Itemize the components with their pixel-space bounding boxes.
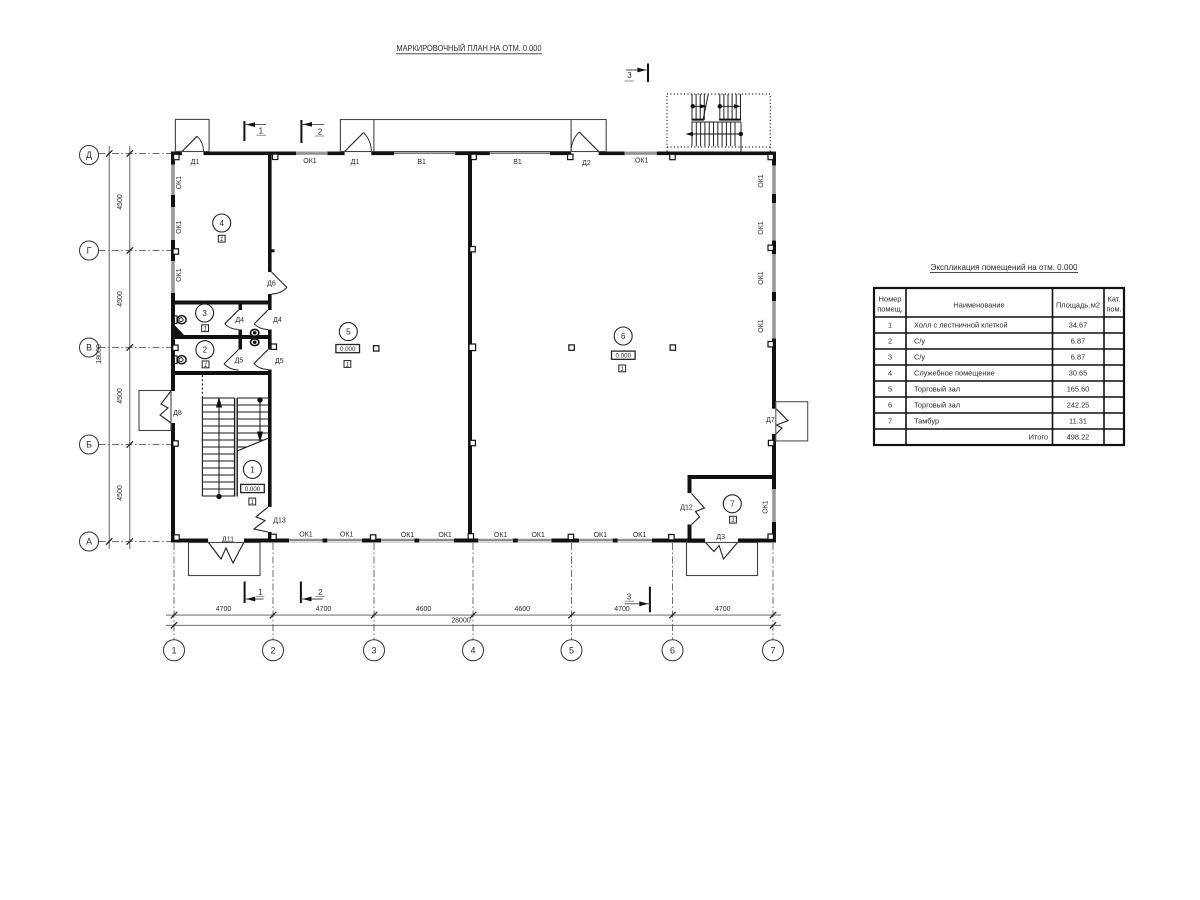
svg-text:1: 1 — [346, 361, 350, 368]
svg-text:28000: 28000 — [451, 618, 471, 625]
svg-text:165.60: 165.60 — [1067, 385, 1090, 394]
svg-text:ОК1: ОК1 — [340, 532, 354, 539]
svg-text:6.87: 6.87 — [1071, 353, 1085, 362]
svg-text:Д1: Д1 — [191, 159, 200, 166]
svg-text:С/у: С/у — [914, 353, 925, 362]
svg-text:ОК1: ОК1 — [758, 221, 765, 235]
svg-text:Холл с лестничной клеткой: Холл с лестничной клеткой — [914, 321, 1008, 330]
svg-text:1: 1 — [888, 321, 892, 330]
svg-text:помещ.: помещ. — [877, 305, 902, 314]
svg-text:2: 2 — [318, 588, 323, 597]
svg-text:ОК1: ОК1 — [763, 500, 770, 514]
svg-text:2: 2 — [318, 127, 323, 136]
svg-text:4700: 4700 — [715, 606, 731, 613]
svg-text:5: 5 — [888, 385, 892, 394]
svg-text:7: 7 — [730, 500, 735, 509]
svg-text:1: 1 — [204, 362, 208, 369]
svg-text:1: 1 — [220, 236, 224, 243]
svg-text:ОК1: ОК1 — [299, 532, 313, 539]
svg-text:Кат.: Кат. — [1108, 295, 1121, 304]
svg-text:Б: Б — [86, 440, 92, 450]
svg-text:ОК1: ОК1 — [303, 158, 317, 165]
svg-text:Тамбур: Тамбур — [914, 417, 939, 426]
svg-text:Д4: Д4 — [235, 317, 244, 324]
svg-text:242.25: 242.25 — [1067, 401, 1090, 410]
svg-text:ОК1: ОК1 — [758, 271, 765, 285]
svg-text:2: 2 — [203, 346, 208, 355]
svg-text:Торговый зал: Торговый зал — [914, 385, 960, 394]
svg-text:Площадь,: Площадь, — [1056, 301, 1090, 310]
svg-text:пом.: пом. — [1106, 305, 1121, 314]
svg-text:Г: Г — [87, 246, 92, 256]
svg-text:4700: 4700 — [216, 606, 232, 613]
svg-text:4600: 4600 — [515, 606, 531, 613]
svg-text:Д6: Д6 — [267, 281, 276, 288]
svg-text:0.000: 0.000 — [245, 486, 261, 493]
svg-text:1: 1 — [250, 465, 255, 474]
svg-text:4500: 4500 — [117, 485, 124, 501]
svg-text:ОК1: ОК1 — [758, 319, 765, 333]
svg-text:4: 4 — [888, 369, 892, 378]
svg-text:Д4: Д4 — [273, 317, 282, 324]
svg-text:5: 5 — [569, 645, 574, 655]
svg-text:Д1: Д1 — [351, 159, 360, 166]
svg-text:ОК1: ОК1 — [758, 174, 765, 188]
svg-text:Д5: Д5 — [275, 358, 284, 365]
svg-text:Д2: Д2 — [582, 160, 591, 167]
svg-text:3: 3 — [888, 353, 892, 362]
svg-text:0.000: 0.000 — [340, 346, 356, 353]
svg-text:Д12: Д12 — [680, 505, 693, 512]
svg-text:ОК1: ОК1 — [438, 532, 452, 539]
svg-text:Д: Д — [86, 150, 92, 160]
svg-text:3: 3 — [371, 645, 376, 655]
svg-text:ОК1: ОК1 — [594, 532, 608, 539]
svg-text:6.87: 6.87 — [1071, 337, 1085, 346]
svg-text:Д7: Д7 — [766, 417, 775, 424]
svg-text:В1: В1 — [513, 159, 522, 166]
svg-text:Наименование: Наименование — [953, 301, 1004, 310]
svg-text:1: 1 — [251, 499, 255, 506]
svg-text:С/у: С/у — [914, 337, 925, 346]
svg-text:5: 5 — [346, 328, 351, 337]
svg-text:Торговый зал: Торговый зал — [914, 401, 960, 410]
svg-text:34.67: 34.67 — [1069, 321, 1088, 330]
svg-text:3: 3 — [627, 71, 632, 80]
svg-text:30.65: 30.65 — [1069, 369, 1088, 378]
svg-text:7: 7 — [770, 645, 775, 655]
svg-text:498.22: 498.22 — [1067, 433, 1090, 442]
svg-text:4500: 4500 — [117, 194, 124, 210]
svg-text:1: 1 — [171, 645, 176, 655]
svg-text:ОК1: ОК1 — [176, 268, 183, 282]
svg-text:0.000: 0.000 — [616, 353, 632, 360]
svg-text:ОК1: ОК1 — [633, 532, 647, 539]
svg-text:1: 1 — [258, 588, 263, 597]
svg-text:Итого: Итого — [1029, 433, 1048, 442]
svg-text:Номер: Номер — [879, 295, 902, 304]
svg-text:Д13: Д13 — [273, 517, 286, 524]
svg-text:2: 2 — [888, 337, 892, 346]
svg-text:Экспликация помещений на отм.: Экспликация помещений на отм. 0.000 — [931, 262, 1078, 272]
svg-text:Д8: Д8 — [173, 410, 182, 417]
svg-text:ОК1: ОК1 — [176, 220, 183, 234]
svg-text:Д5: Д5 — [235, 357, 244, 364]
svg-text:1: 1 — [731, 517, 735, 524]
svg-text:3: 3 — [627, 593, 632, 602]
svg-text:В1: В1 — [417, 159, 426, 166]
svg-text:ОК1: ОК1 — [531, 532, 545, 539]
svg-text:м2: м2 — [1091, 301, 1100, 310]
svg-text:ОК1: ОК1 — [635, 157, 649, 164]
svg-text:1: 1 — [620, 366, 624, 373]
svg-text:1: 1 — [259, 127, 264, 136]
svg-text:4500: 4500 — [117, 291, 124, 307]
svg-text:1: 1 — [203, 326, 207, 333]
svg-text:Д3: Д3 — [716, 534, 725, 541]
svg-text:3: 3 — [202, 309, 207, 318]
svg-text:4700: 4700 — [316, 606, 332, 613]
svg-text:ОК1: ОК1 — [176, 176, 183, 190]
svg-text:А: А — [86, 537, 92, 547]
svg-text:6: 6 — [888, 401, 892, 410]
svg-text:11.31: 11.31 — [1069, 417, 1087, 426]
svg-text:Д11: Д11 — [222, 536, 234, 543]
svg-text:МАРКИРОВОЧНЫЙ ПЛАН НА ОТМ. 0.0: МАРКИРОВОЧНЫЙ ПЛАН НА ОТМ. 0.000 — [397, 44, 543, 53]
svg-text:6: 6 — [621, 332, 626, 341]
svg-text:ОК1: ОК1 — [401, 532, 415, 539]
svg-text:Служебное помещение: Служебное помещение — [914, 369, 995, 378]
svg-text:4: 4 — [470, 645, 475, 655]
svg-text:18000: 18000 — [96, 344, 103, 364]
svg-text:4700: 4700 — [614, 606, 630, 613]
svg-text:2: 2 — [270, 645, 275, 655]
svg-text:4: 4 — [219, 219, 224, 228]
svg-text:ОК1: ОК1 — [494, 532, 508, 539]
svg-text:6: 6 — [670, 645, 675, 655]
svg-text:В: В — [86, 343, 92, 353]
svg-text:7: 7 — [888, 417, 892, 426]
svg-text:4500: 4500 — [117, 388, 124, 404]
svg-text:4600: 4600 — [416, 606, 432, 613]
